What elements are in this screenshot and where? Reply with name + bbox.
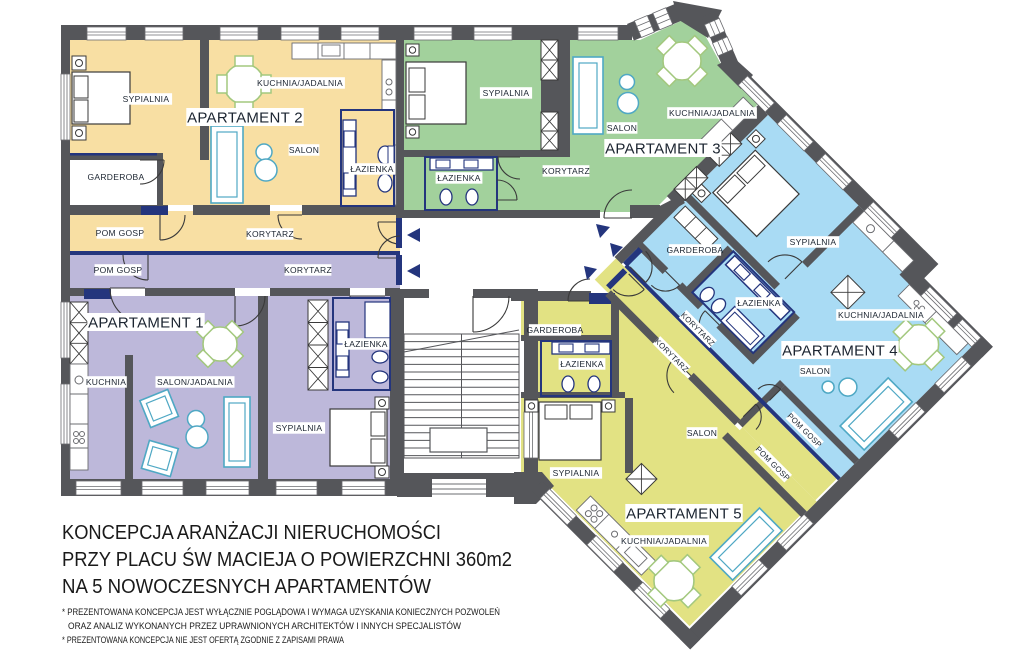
svg-text:KUCHNIA/JADALNIA: KUCHNIA/JADALNIA	[621, 536, 707, 546]
svg-text:KUCHNIA/JADALNIA: KUCHNIA/JADALNIA	[838, 310, 924, 320]
svg-text:KUCHNIA/JADALNIA: KUCHNIA/JADALNIA	[669, 108, 755, 118]
svg-text:SYPIALNIA: SYPIALNIA	[123, 94, 170, 104]
svg-text:* PREZENTOWANA KONCEPCJA JEST: * PREZENTOWANA KONCEPCJA JEST WYŁĄCZNIE …	[62, 607, 500, 617]
svg-text:APARTAMENT 4: APARTAMENT 4	[782, 342, 898, 359]
svg-text:GARDEROBA: GARDEROBA	[87, 172, 144, 182]
svg-text:SALON: SALON	[687, 428, 717, 438]
svg-text:ŁAZIENKA: ŁAZIENKA	[737, 298, 781, 308]
svg-text:APARTAMENT 1: APARTAMENT 1	[88, 314, 204, 331]
svg-text:* PREZENTOWANA KONCEPCJA NIE J: * PREZENTOWANA KONCEPCJA NIE JEST OFERTĄ…	[62, 635, 344, 645]
svg-text:SYPIALNIA: SYPIALNIA	[553, 468, 600, 478]
svg-text:GARDEROBA: GARDEROBA	[526, 325, 583, 335]
svg-text:KUCHNIA/JADALNIA: KUCHNIA/JADALNIA	[257, 78, 343, 88]
svg-text:APARTAMENT 5: APARTAMENT 5	[626, 505, 742, 522]
svg-text:SALON: SALON	[607, 123, 637, 133]
svg-text:KUCHNIA: KUCHNIA	[86, 377, 126, 387]
svg-text:SALON: SALON	[289, 145, 319, 155]
svg-text:SALON/JADALNIA: SALON/JADALNIA	[157, 377, 233, 387]
svg-text:POM GOSP: POM GOSP	[96, 228, 145, 238]
svg-text:APARTAMENT 3: APARTAMENT 3	[605, 140, 721, 157]
svg-text:POM GOSP: POM GOSP	[94, 265, 143, 275]
svg-text:ŁAZIENKA: ŁAZIENKA	[344, 339, 388, 349]
svg-text:ORAZ ANALIZ WYKONANYCH PRZEZ U: ORAZ ANALIZ WYKONANYCH PRZEZ UPRAWNIONYC…	[68, 621, 461, 631]
svg-text:KORYTARZ: KORYTARZ	[542, 166, 590, 176]
svg-text:NA 5 NOWOCZESNYCH APARTAMENTÓW: NA 5 NOWOCZESNYCH APARTAMENTÓW	[62, 575, 431, 598]
svg-text:ŁAZIENKA: ŁAZIENKA	[350, 164, 394, 174]
svg-text:SYPIALNIA: SYPIALNIA	[483, 88, 530, 98]
svg-text:KORYTARZ: KORYTARZ	[246, 229, 294, 239]
svg-text:SYPIALNIA: SYPIALNIA	[790, 237, 837, 247]
svg-text:KORYTARZ: KORYTARZ	[284, 265, 332, 275]
svg-text:ŁAZIENKA: ŁAZIENKA	[560, 359, 604, 369]
svg-text:SYPIALNIA: SYPIALNIA	[276, 423, 323, 433]
svg-text:APARTAMENT 2: APARTAMENT 2	[187, 109, 303, 126]
svg-text:ŁAZIENKA: ŁAZIENKA	[437, 173, 481, 183]
svg-text:GARDEROBA: GARDEROBA	[666, 245, 723, 255]
svg-text:PRZY PLACU ŚW MACIEJA O POWIER: PRZY PLACU ŚW MACIEJA O POWIERZCHNI 360m…	[62, 547, 512, 571]
svg-text:KONCEPCJA ARANŻACJI NIERUCHOMO: KONCEPCJA ARANŻACJI NIERUCHOMOŚCI	[62, 520, 441, 544]
svg-text:SALON: SALON	[800, 366, 830, 376]
